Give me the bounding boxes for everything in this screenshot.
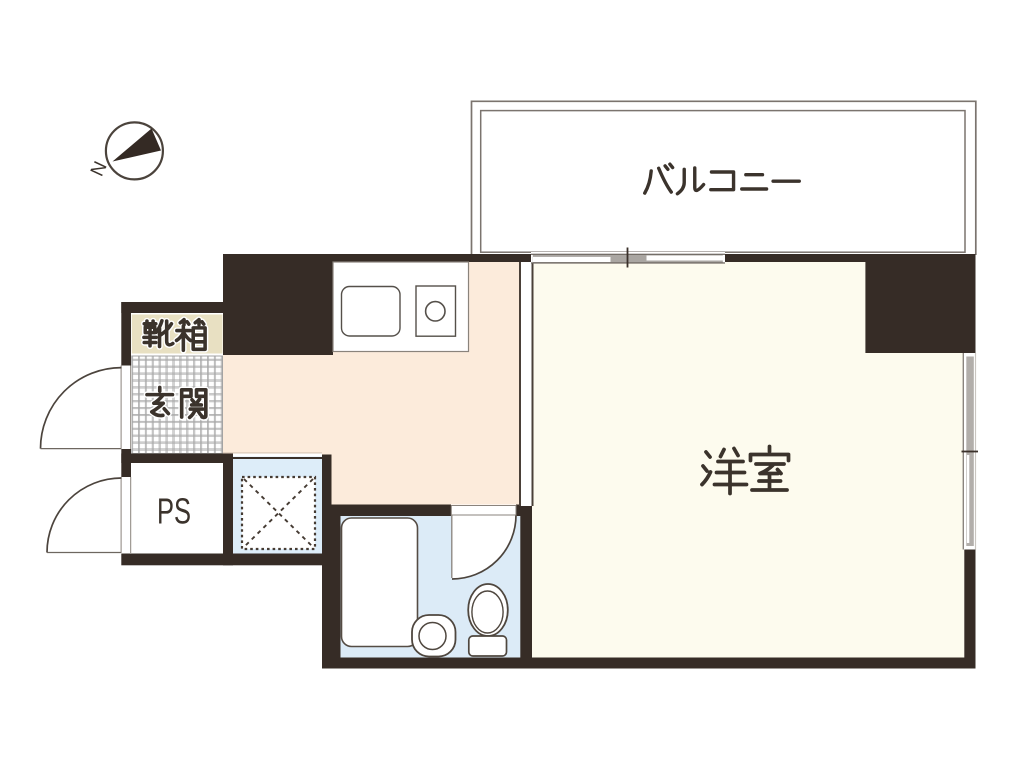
svg-text:PS: PS — [157, 491, 191, 532]
